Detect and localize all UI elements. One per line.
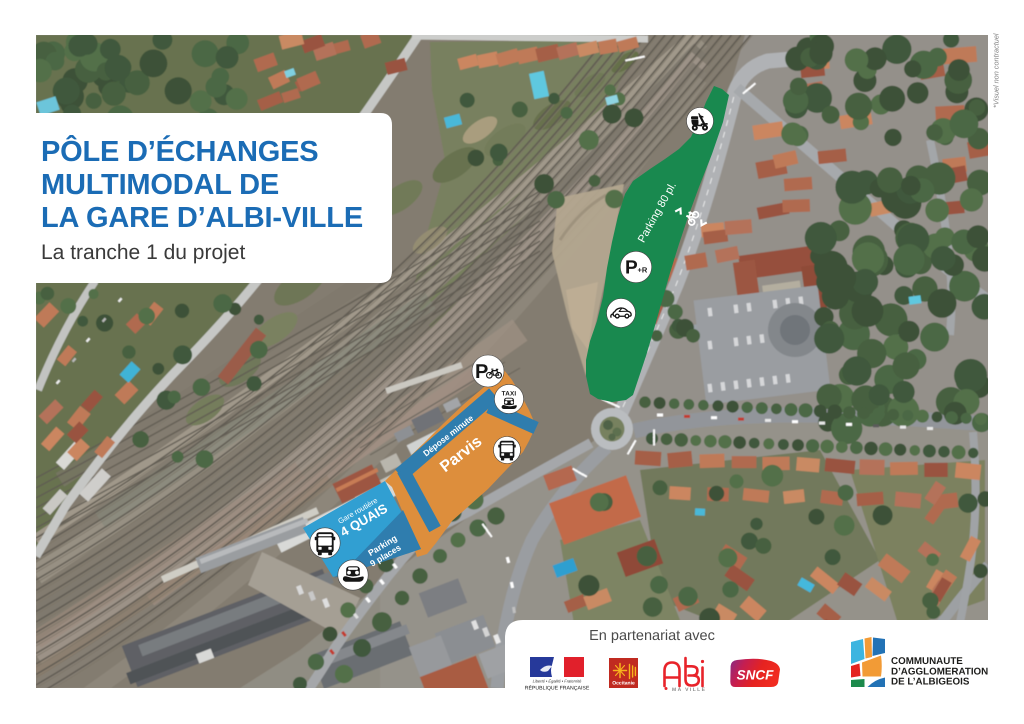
svg-text:+R: +R bbox=[638, 266, 648, 275]
svg-text:DE L’ALBIGEOIS: DE L’ALBIGEOIS bbox=[891, 677, 970, 688]
svg-text:*Visuel non contractuel: *Visuel non contractuel bbox=[992, 33, 1001, 108]
svg-text:La tranche 1 du projet: La tranche 1 du projet bbox=[41, 241, 245, 264]
svg-text:TAXI: TAXI bbox=[502, 391, 517, 398]
svg-text:Occitanie: Occitanie bbox=[612, 681, 635, 687]
svg-text:MA VILLE: MA VILLE bbox=[672, 687, 706, 693]
svg-text:Liberté • Égalité • Fraternité: Liberté • Égalité • Fraternité bbox=[533, 678, 583, 683]
svg-text:LA GARE D’ALBI-VILLE: LA GARE D’ALBI-VILLE bbox=[41, 202, 363, 234]
svg-text:RÉPUBLIQUE FRANÇAISE: RÉPUBLIQUE FRANÇAISE bbox=[525, 684, 590, 691]
svg-text:P: P bbox=[475, 361, 488, 383]
svg-text:En partenariat avec: En partenariat avec bbox=[589, 628, 715, 644]
svg-text:SNCF: SNCF bbox=[737, 668, 775, 683]
svg-text:P: P bbox=[625, 258, 638, 279]
svg-text:PÔLE D’ÉCHANGES: PÔLE D’ÉCHANGES bbox=[41, 135, 318, 168]
svg-text:MULTIMODAL DE: MULTIMODAL DE bbox=[41, 169, 279, 201]
